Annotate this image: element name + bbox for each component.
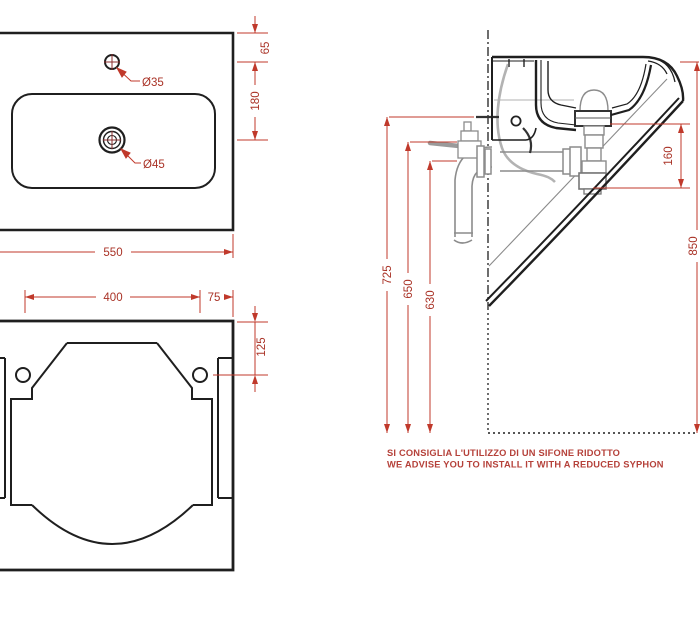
top-view-outline [0, 33, 233, 230]
front-view: 400 75 125 [0, 290, 268, 570]
dim-height-630: 630 [425, 290, 437, 309]
dim-fixing-spacing: 400 [103, 292, 122, 304]
technical-drawing-page: Ø35 Ø45 65 180 550 [0, 0, 700, 625]
mounting-hole-right [193, 368, 207, 382]
dim-height-850: 850 [688, 236, 700, 255]
bowl-arc [32, 505, 193, 544]
dim-fixing-edge: 75 [208, 292, 221, 304]
bowl-outer-wall [536, 60, 576, 130]
bowl-inner-wall [548, 61, 576, 108]
faucet-hole [104, 54, 120, 70]
valve-lever [430, 143, 459, 146]
advisory-note: SI CONSIGLIA L'UTILIZZO DI UN SIFONE RID… [387, 448, 664, 470]
side-view: 725 650 630 850 160 [381, 30, 700, 433]
dim-fixing-depth: 125 [256, 337, 268, 356]
top-view: Ø35 Ø45 65 180 550 [0, 16, 272, 259]
side-dim-arrows [384, 62, 700, 433]
dim-hole-offset: 65 [260, 42, 272, 55]
underside-contour [0, 343, 233, 544]
dim-faucet-hole-diameter: Ø35 [142, 77, 164, 89]
dim-drain-hole-diameter: Ø45 [143, 159, 165, 171]
popup-cap [580, 90, 608, 111]
angle-valve [430, 122, 481, 158]
dim-65-180-lines [237, 16, 268, 140]
dim-drain-offset-160: 160 [663, 146, 675, 165]
note-line-italian: SI CONSIGLIA L'UTILIZZO DI UN SIFONE RID… [387, 448, 620, 458]
drain-assembly [575, 90, 611, 194]
supply-hose [497, 64, 555, 182]
front-curve-inner [486, 98, 679, 301]
mounting-hole-left [16, 368, 30, 382]
basin-rim [12, 94, 215, 188]
note-line-english: WE ADVISE YOU TO INSTALL IT WITH A REDUC… [387, 460, 664, 470]
washbasin-technical-drawing: Ø35 Ø45 65 180 550 [0, 0, 700, 625]
tap-knob [511, 116, 520, 125]
dim-height-650: 650 [403, 279, 415, 298]
dim-width: 550 [103, 247, 122, 259]
leader-lines [117, 68, 141, 163]
dim-hole-spacing: 180 [250, 91, 262, 110]
fixing-bolts [509, 59, 524, 67]
dim-550-arrow [224, 249, 233, 255]
dim-height-725: 725 [382, 265, 394, 284]
front-view-outline [0, 321, 233, 570]
side-dim-lines [387, 62, 699, 433]
